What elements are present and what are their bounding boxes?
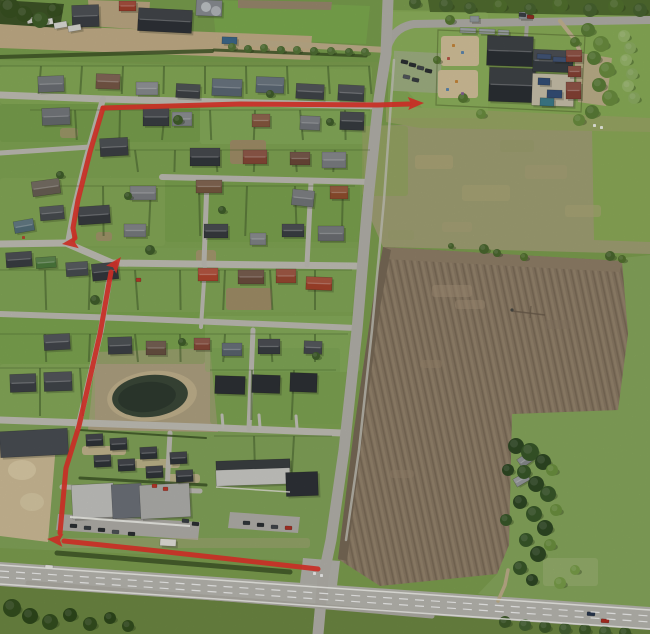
aerial-map-view[interactable] — [0, 0, 650, 634]
aerial-photo — [0, 0, 650, 634]
grain-texture — [0, 0, 650, 634]
photo-grain-overlay — [0, 0, 650, 634]
